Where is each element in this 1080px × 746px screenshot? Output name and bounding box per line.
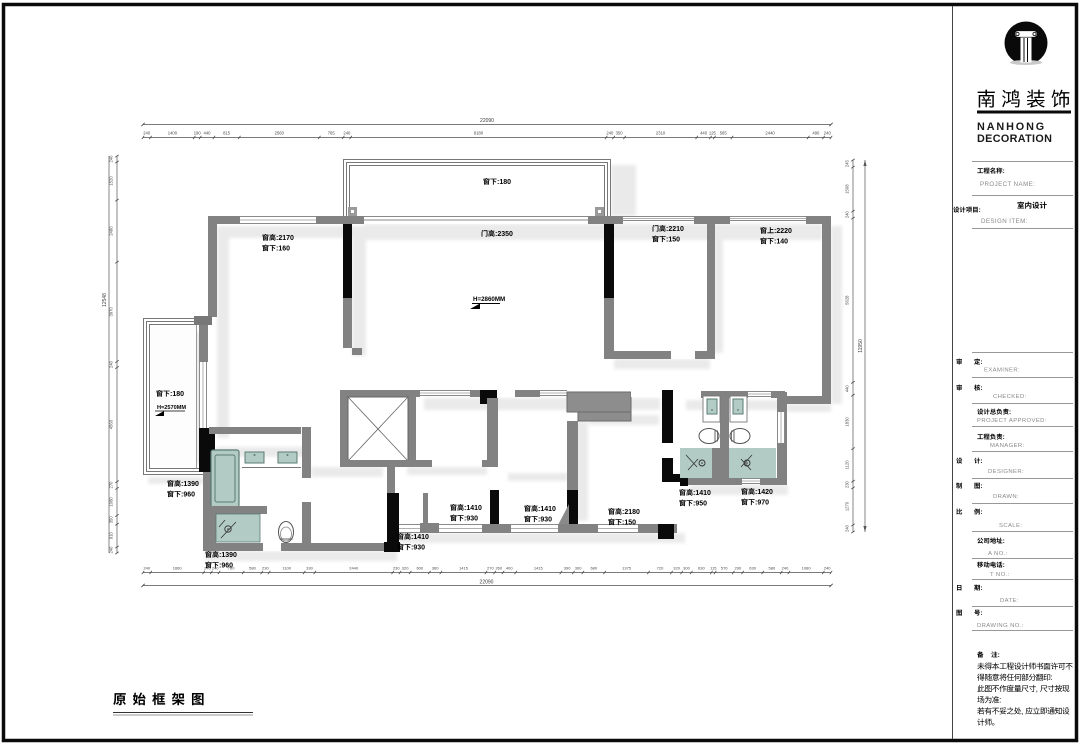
svg-text:910: 910	[109, 531, 114, 539]
svg-text:290: 290	[735, 566, 742, 571]
svg-text:240: 240	[845, 524, 850, 532]
svg-text::180: :180	[170, 391, 184, 398]
svg-text::2220: :2220	[774, 228, 792, 235]
svg-text:230: 230	[393, 566, 400, 571]
svg-text:DESIGN ITEM:: DESIGN ITEM:	[981, 218, 1028, 225]
svg-text:H=2860MM: H=2860MM	[473, 296, 505, 303]
svg-text:MANAGER:: MANAGER:	[990, 443, 1025, 449]
svg-text:DECORATION: DECORATION	[977, 133, 1052, 145]
svg-text::180: :180	[497, 179, 511, 186]
svg-text::: :	[980, 458, 982, 465]
svg-text:260: 260	[495, 566, 502, 571]
svg-text:115: 115	[710, 566, 717, 571]
svg-text:230: 230	[262, 566, 269, 571]
svg-text:2440: 2440	[349, 566, 359, 571]
svg-text:720: 720	[657, 566, 664, 571]
svg-text:760: 760	[228, 566, 235, 571]
svg-text:22090: 22090	[480, 580, 494, 586]
svg-text::2210: :2210	[666, 226, 684, 233]
svg-text:240: 240	[109, 155, 114, 163]
svg-text::1410: :1410	[464, 505, 482, 512]
svg-text::: :	[980, 359, 982, 366]
svg-text:SCALE:: SCALE:	[999, 523, 1022, 529]
svg-text:NANHONG: NANHONG	[977, 121, 1046, 133]
svg-text:630: 630	[749, 566, 756, 571]
svg-text:PROJECT APPROVED:: PROJECT APPROVED:	[977, 418, 1047, 424]
svg-text:390: 390	[564, 566, 571, 571]
svg-text:1080: 1080	[802, 566, 812, 571]
svg-text:DRAWING NO.:: DRAWING NO.:	[977, 623, 1024, 629]
svg-text:1415: 1415	[459, 566, 469, 571]
svg-text:240: 240	[824, 566, 831, 571]
svg-text:22090: 22090	[480, 118, 494, 124]
svg-text::970: :970	[755, 500, 769, 507]
svg-text::: :	[980, 509, 982, 516]
svg-text:600: 600	[416, 566, 423, 571]
svg-text::: :	[1003, 434, 1005, 441]
svg-text::: :	[1003, 168, 1005, 175]
svg-text:1400: 1400	[168, 131, 178, 136]
svg-text:240: 240	[109, 360, 114, 368]
svg-text:1415: 1415	[534, 566, 544, 571]
svg-text:DATE:: DATE:	[1000, 598, 1019, 604]
svg-text:580: 580	[769, 566, 776, 571]
svg-text:680: 680	[590, 566, 597, 571]
svg-text::950: :950	[693, 501, 707, 508]
svg-text:2560: 2560	[275, 131, 285, 136]
svg-text::1410: :1410	[693, 490, 711, 497]
svg-text:440: 440	[204, 131, 212, 136]
svg-text::: :	[980, 483, 982, 490]
svg-text::: :	[1051, 673, 1053, 682]
svg-text:1375: 1375	[622, 566, 632, 571]
svg-text:,: ,	[1036, 684, 1038, 693]
svg-text:320: 320	[673, 566, 680, 571]
svg-text:2440: 2440	[765, 131, 775, 136]
svg-text::140: :140	[774, 239, 788, 246]
svg-text::1410: :1410	[411, 534, 429, 541]
svg-text:630: 630	[698, 566, 705, 571]
svg-text:320: 320	[402, 566, 409, 571]
svg-text:1270: 1270	[845, 501, 850, 511]
svg-text::2180: :2180	[622, 509, 640, 516]
svg-text:270: 270	[487, 566, 494, 571]
svg-text::: :	[980, 610, 982, 617]
svg-text:EXAMINER:: EXAMINER:	[984, 368, 1020, 374]
svg-text:815: 815	[223, 131, 231, 136]
svg-text:440: 440	[845, 385, 850, 393]
svg-text:H=2570MM: H=2570MM	[157, 405, 186, 411]
svg-text:2310: 2310	[656, 131, 666, 136]
svg-text:8180: 8180	[474, 131, 484, 136]
svg-text::2170: :2170	[276, 235, 294, 242]
svg-text:240: 240	[606, 131, 614, 136]
svg-text::1390: :1390	[219, 552, 237, 559]
svg-text:360: 360	[432, 566, 439, 571]
svg-text:240: 240	[343, 131, 351, 136]
svg-text:1100: 1100	[282, 566, 291, 571]
svg-text:1120: 1120	[845, 460, 850, 470]
svg-text:350: 350	[616, 131, 624, 136]
svg-text::930: :930	[538, 517, 552, 524]
svg-text::: :	[980, 585, 982, 592]
svg-text::: :	[1003, 538, 1005, 545]
svg-text::1390: :1390	[181, 481, 199, 488]
svg-text::150: :150	[666, 237, 680, 244]
svg-text:,: ,	[1021, 707, 1023, 716]
svg-text:240: 240	[143, 566, 150, 571]
svg-text:240: 240	[212, 566, 219, 571]
svg-text:230: 230	[845, 480, 850, 488]
svg-text:1508: 1508	[845, 184, 850, 194]
svg-text:PROJECT NAME:: PROJECT NAME:	[980, 181, 1035, 188]
svg-text:1830: 1830	[845, 417, 850, 427]
svg-text:CHECKED:: CHECKED:	[993, 394, 1027, 400]
svg-text::1420: :1420	[755, 489, 773, 496]
svg-text::: :	[980, 385, 982, 392]
svg-text::: :	[1009, 409, 1011, 416]
svg-text:240: 240	[845, 210, 850, 218]
svg-text:580: 580	[249, 566, 256, 571]
svg-text:T NO.:: T NO.:	[990, 572, 1010, 578]
svg-text:2480: 2480	[109, 226, 114, 236]
svg-text:3970: 3970	[109, 306, 114, 316]
svg-text::2350: :2350	[495, 231, 513, 238]
svg-text:440: 440	[700, 131, 708, 136]
svg-text:245: 245	[845, 159, 850, 167]
svg-text:240: 240	[824, 131, 832, 136]
svg-text:240: 240	[143, 131, 151, 136]
svg-text:350: 350	[109, 516, 114, 524]
svg-text:330: 330	[306, 566, 313, 571]
svg-text:1520: 1520	[109, 176, 114, 186]
svg-text:240: 240	[109, 546, 114, 554]
svg-text:12548: 12548	[102, 293, 108, 307]
svg-text:1080: 1080	[109, 497, 114, 507]
svg-text:4560: 4560	[109, 419, 114, 429]
svg-text:490: 490	[812, 131, 820, 136]
svg-text:570: 570	[721, 566, 728, 571]
svg-text:765: 765	[328, 131, 336, 136]
svg-text:125: 125	[709, 131, 717, 136]
svg-text::1410: :1410	[538, 506, 556, 513]
svg-text:400: 400	[506, 566, 513, 571]
svg-text:1660: 1660	[173, 566, 183, 571]
svg-text:270: 270	[109, 481, 114, 489]
svg-text:300: 300	[575, 566, 582, 571]
svg-text:240: 240	[782, 566, 789, 571]
svg-text:240: 240	[204, 566, 211, 571]
svg-text:A NO.:: A NO.:	[988, 551, 1008, 557]
svg-text:DRAWN:: DRAWN:	[993, 494, 1019, 500]
svg-text::: :	[999, 696, 1001, 705]
svg-text:DESIGNER:: DESIGNER:	[988, 469, 1024, 475]
svg-text:190: 190	[194, 131, 202, 136]
svg-text::930: :930	[411, 545, 425, 552]
svg-text::150: :150	[622, 520, 636, 527]
svg-text:5628: 5628	[845, 295, 850, 305]
svg-text::930: :930	[464, 516, 478, 523]
svg-text::: :	[979, 207, 981, 214]
svg-text:565: 565	[720, 131, 728, 136]
svg-text::160: :160	[276, 246, 290, 253]
svg-text::960: :960	[181, 492, 195, 499]
svg-text::: :	[1003, 562, 1005, 569]
svg-text:300: 300	[683, 566, 690, 571]
svg-text:11950: 11950	[858, 339, 864, 353]
svg-text::: :	[998, 652, 1000, 659]
